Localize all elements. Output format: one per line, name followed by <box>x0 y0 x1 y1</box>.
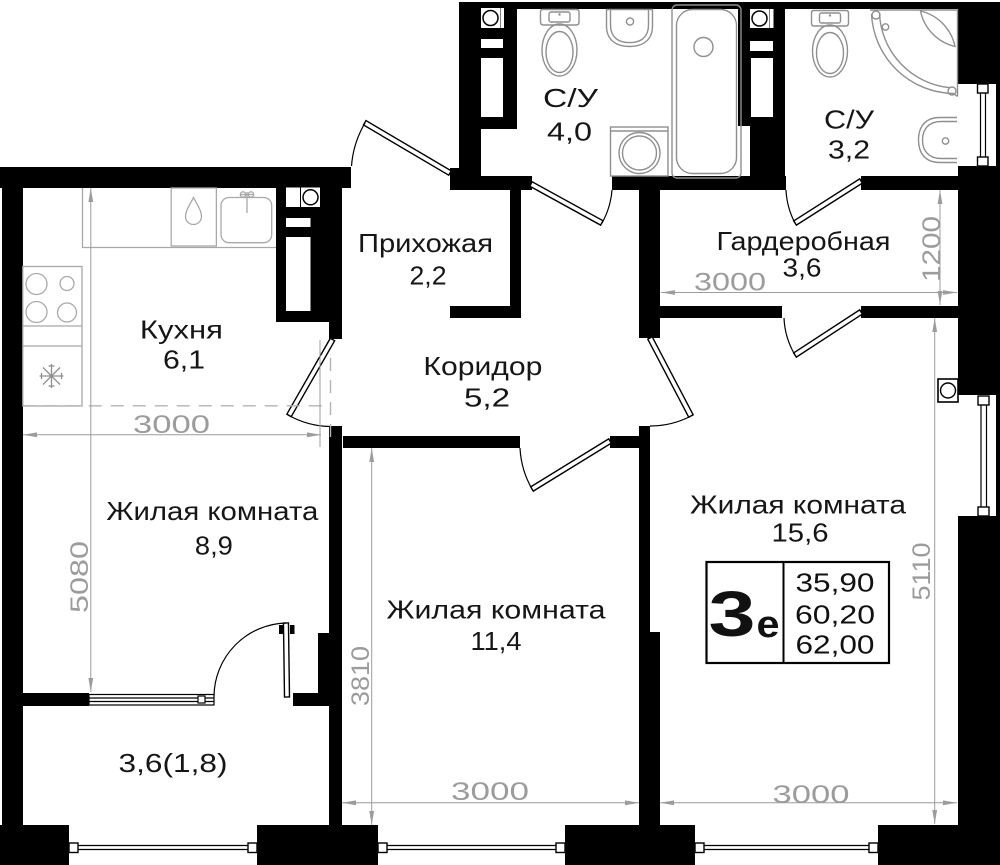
svg-text:62,00: 62,00 <box>796 630 875 660</box>
svg-text:3000: 3000 <box>133 411 210 439</box>
svg-text:Жилая комната: Жилая комната <box>690 490 907 520</box>
svg-text:Жилая комната: Жилая комната <box>387 595 607 625</box>
svg-text:11,4: 11,4 <box>471 626 522 656</box>
svg-text:3,6(1,8): 3,6(1,8) <box>119 748 228 778</box>
svg-text:3000: 3000 <box>451 778 529 806</box>
svg-text:С/У: С/У <box>543 83 599 113</box>
svg-text:2,2: 2,2 <box>410 261 447 291</box>
svg-text:Прихожая: Прихожая <box>358 228 493 258</box>
svg-text:3,2: 3,2 <box>828 135 870 165</box>
svg-text:Жилая комната: Жилая комната <box>106 496 319 526</box>
svg-text:35,90: 35,90 <box>796 568 875 598</box>
svg-text:5,2: 5,2 <box>464 383 510 413</box>
svg-text:4,0: 4,0 <box>547 117 592 147</box>
svg-text:3000: 3000 <box>773 781 850 809</box>
svg-text:5110: 5110 <box>908 543 936 601</box>
svg-text:60,20: 60,20 <box>795 600 875 630</box>
svg-text:8,9: 8,9 <box>195 531 233 561</box>
svg-text:3000: 3000 <box>694 269 766 297</box>
svg-text:15,6: 15,6 <box>772 518 829 548</box>
svg-text:5080: 5080 <box>66 541 94 613</box>
svg-text:3810: 3810 <box>347 646 375 706</box>
svg-text:6,1: 6,1 <box>163 345 205 375</box>
svg-text:е: е <box>757 604 780 646</box>
svg-text:Коридор: Коридор <box>423 351 542 381</box>
svg-text:3: 3 <box>709 578 756 650</box>
svg-text:3,6: 3,6 <box>783 253 822 283</box>
svg-text:Кухня: Кухня <box>140 315 223 345</box>
svg-text:С/У: С/У <box>824 105 875 135</box>
svg-text:Гардеробная: Гардеробная <box>717 226 891 256</box>
svg-text:1200: 1200 <box>918 216 946 282</box>
